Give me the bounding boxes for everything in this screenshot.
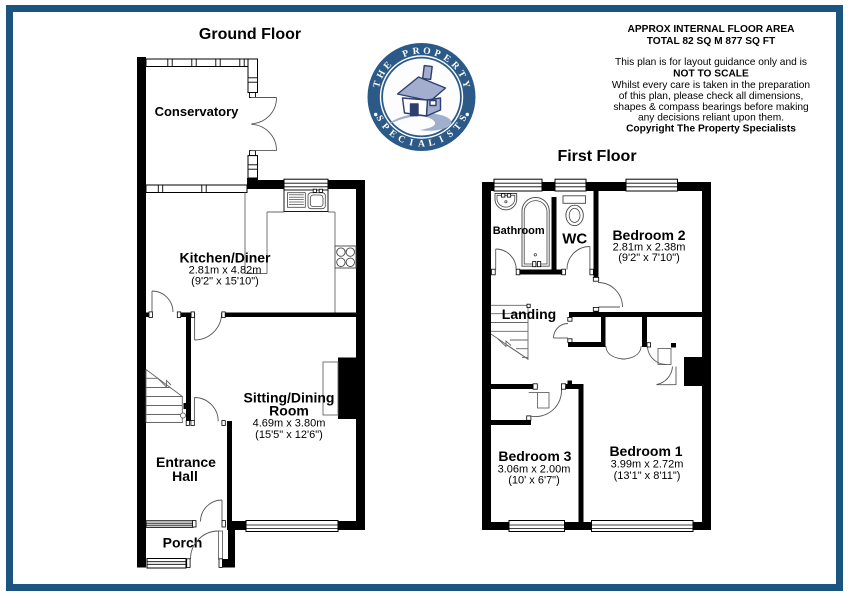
svg-text:(9'2" x 7'10"): (9'2" x 7'10") — [618, 252, 680, 264]
svg-text:shapes & compass bearings befo: shapes & compass bearings before making — [613, 102, 809, 113]
svg-text:Bathroom: Bathroom — [493, 225, 545, 237]
svg-text:Room: Room — [269, 403, 309, 419]
svg-text:WC: WC — [562, 230, 587, 247]
svg-text:4.69m x 3.80m: 4.69m x 3.80m — [253, 418, 326, 430]
svg-text:A: A — [418, 139, 425, 150]
svg-text:(15'5" x 12'6"): (15'5" x 12'6") — [255, 429, 323, 441]
svg-text:First Floor: First Floor — [557, 148, 636, 165]
svg-text:Bedroom 1: Bedroom 1 — [609, 443, 682, 459]
svg-text:Kitchen/Diner: Kitchen/Diner — [179, 250, 271, 266]
svg-text:NOT TO SCALE: NOT TO SCALE — [673, 69, 749, 80]
svg-text:This plan is for layout guidan: This plan is for layout guidance only an… — [615, 57, 807, 68]
svg-text:(9'2" x 15'10"): (9'2" x 15'10") — [191, 276, 259, 288]
svg-text:of this plan, please check all: of this plan, please check all dimension… — [619, 91, 804, 102]
svg-text:Conservatory: Conservatory — [155, 104, 240, 119]
svg-text:Copyright The Property Special: Copyright The Property Specialists — [626, 124, 796, 135]
svg-text:(10' x 6'7"): (10' x 6'7") — [508, 475, 560, 487]
svg-text:Hall: Hall — [172, 468, 198, 484]
svg-text:(13'1" x 8'11"): (13'1" x 8'11") — [614, 470, 681, 482]
svg-text:any decisions reliant upon the: any decisions reliant upon them. — [638, 113, 784, 124]
svg-text:Landing: Landing — [502, 306, 556, 322]
svg-text:TOTAL 82 SQ M 877 SQ FT: TOTAL 82 SQ M 877 SQ FT — [647, 36, 776, 47]
svg-text:Whilst every care is taken in: Whilst every care is taken in the prepar… — [612, 80, 810, 91]
svg-text:Bedroom 3: Bedroom 3 — [498, 448, 571, 464]
svg-text:APPROX INTERNAL FLOOR AREA: APPROX INTERNAL FLOOR AREA — [628, 24, 796, 35]
svg-text:3.99m x 2.72m: 3.99m x 2.72m — [611, 459, 684, 471]
svg-text:Ground Floor: Ground Floor — [199, 26, 301, 43]
svg-text:O: O — [423, 45, 432, 57]
